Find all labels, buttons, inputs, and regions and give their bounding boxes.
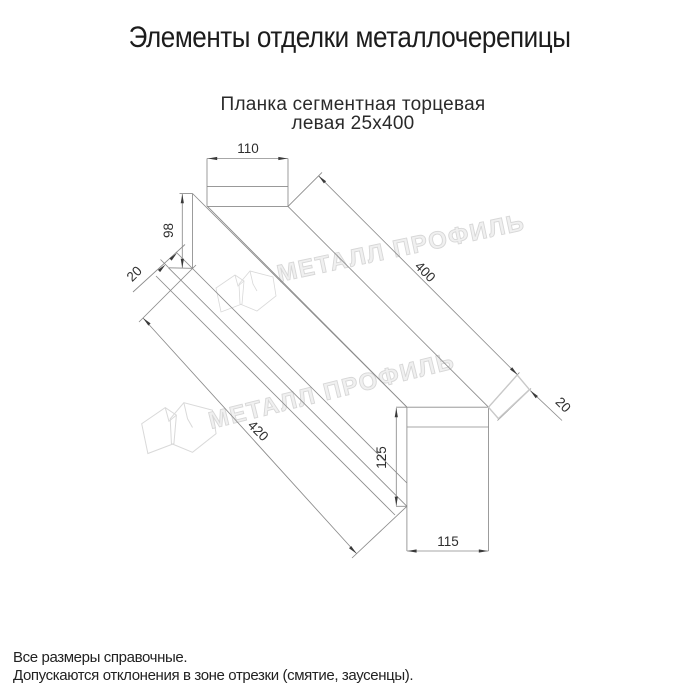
svg-text:МЕТАЛЛ ПРОФИЛЬ: МЕТАЛЛ ПРОФИЛЬ (206, 347, 458, 434)
svg-text:400: 400 (412, 259, 439, 286)
svg-text:20: 20 (553, 394, 574, 415)
svg-text:115: 115 (437, 534, 459, 549)
svg-text:98: 98 (161, 223, 176, 238)
svg-text:20: 20 (124, 263, 145, 284)
svg-text:МЕТАЛЛ ПРОФИЛЬ: МЕТАЛЛ ПРОФИЛЬ (275, 209, 528, 288)
svg-text:110: 110 (237, 141, 259, 156)
svg-text:125: 125 (374, 446, 389, 469)
